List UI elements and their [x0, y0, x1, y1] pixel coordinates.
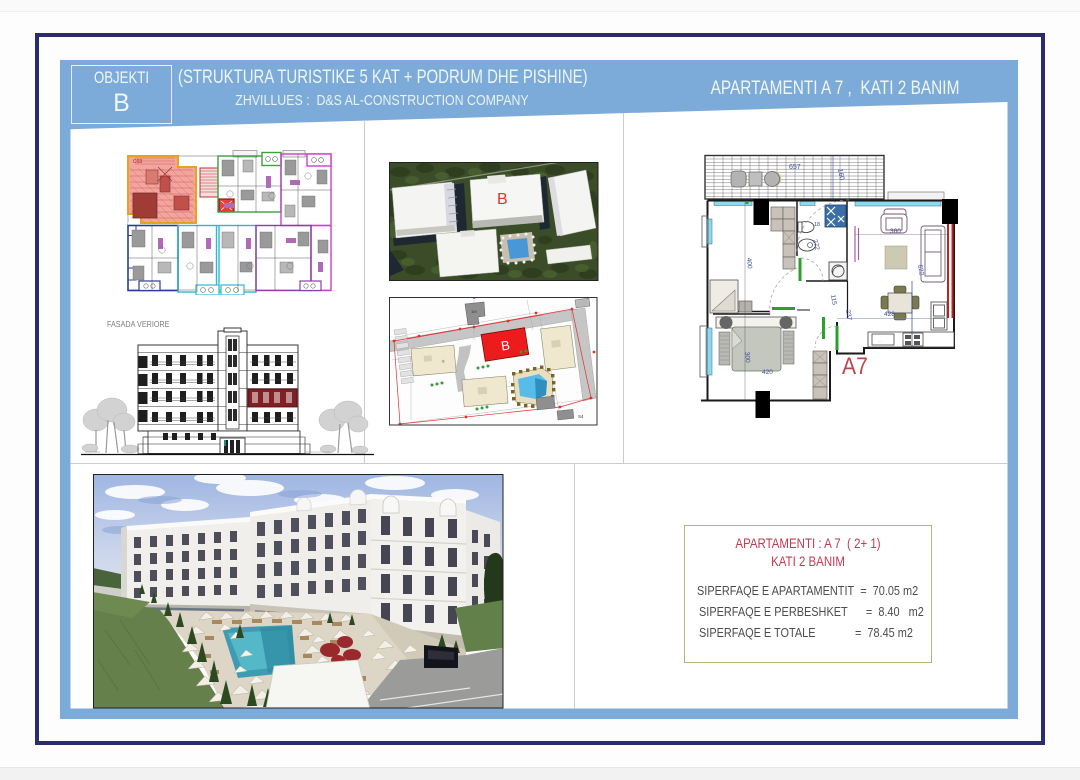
svg-text:S4: S4 [578, 414, 584, 419]
svg-text:18: 18 [814, 222, 820, 228]
svg-text:237: 237 [844, 309, 853, 321]
svg-text:A7: A7 [842, 353, 868, 380]
svg-text:657: 657 [789, 164, 801, 171]
svg-text:115: 115 [829, 294, 838, 306]
svg-text:C03: C03 [133, 159, 142, 165]
svg-text:420: 420 [762, 369, 773, 376]
svg-text:1M: 1M [471, 309, 477, 314]
svg-text:B: B [497, 191, 508, 208]
svg-text:...: ... [878, 338, 881, 343]
svg-text:428: 428 [884, 311, 895, 318]
svg-text:300: 300 [743, 352, 751, 364]
svg-text:622: 622 [916, 264, 925, 276]
svg-text:400: 400 [745, 258, 753, 270]
svg-text:360: 360 [890, 228, 901, 235]
